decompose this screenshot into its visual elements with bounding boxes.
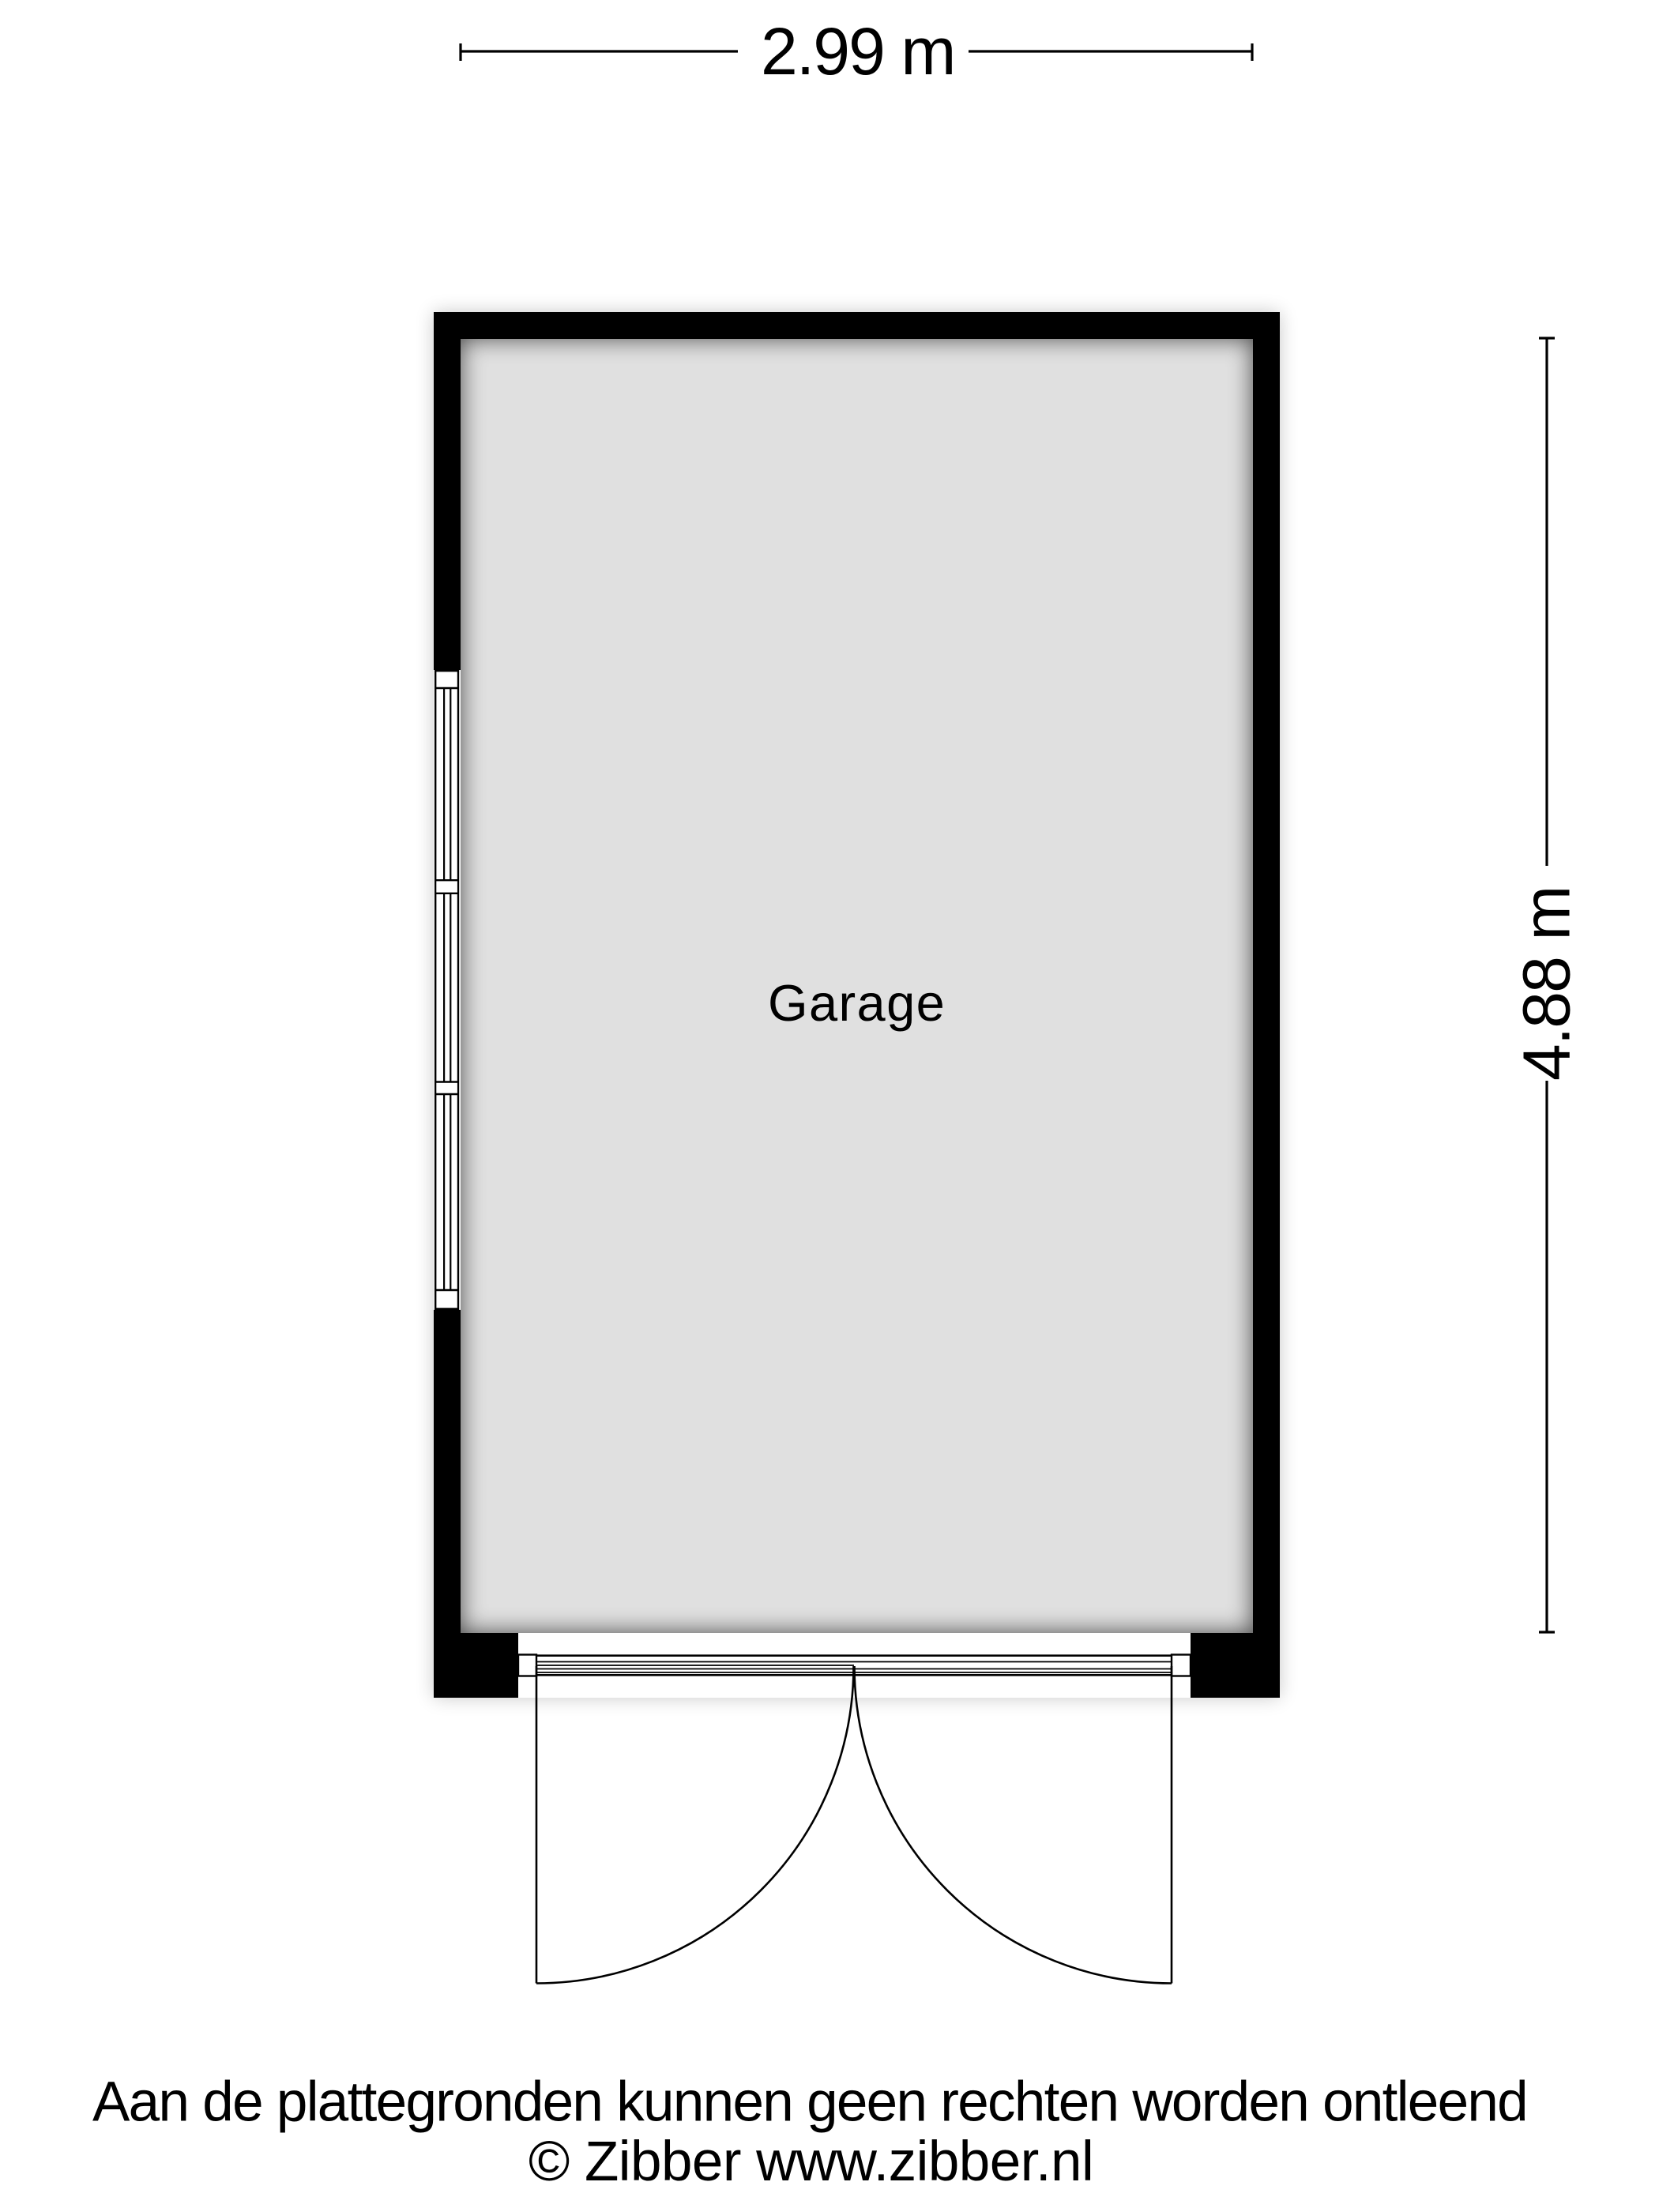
svg-text:2.99 m: 2.99 m — [761, 14, 954, 88]
svg-text:4.88 m: 4.88 m — [1510, 887, 1584, 1081]
svg-text:© Zibber www.zibber.nl: © Zibber www.zibber.nl — [529, 2131, 1093, 2193]
svg-text:Garage: Garage — [768, 974, 946, 1032]
svg-text:Aan de plattegronden kunnen ge: Aan de plattegronden kunnen geen rechten… — [92, 2071, 1527, 2134]
